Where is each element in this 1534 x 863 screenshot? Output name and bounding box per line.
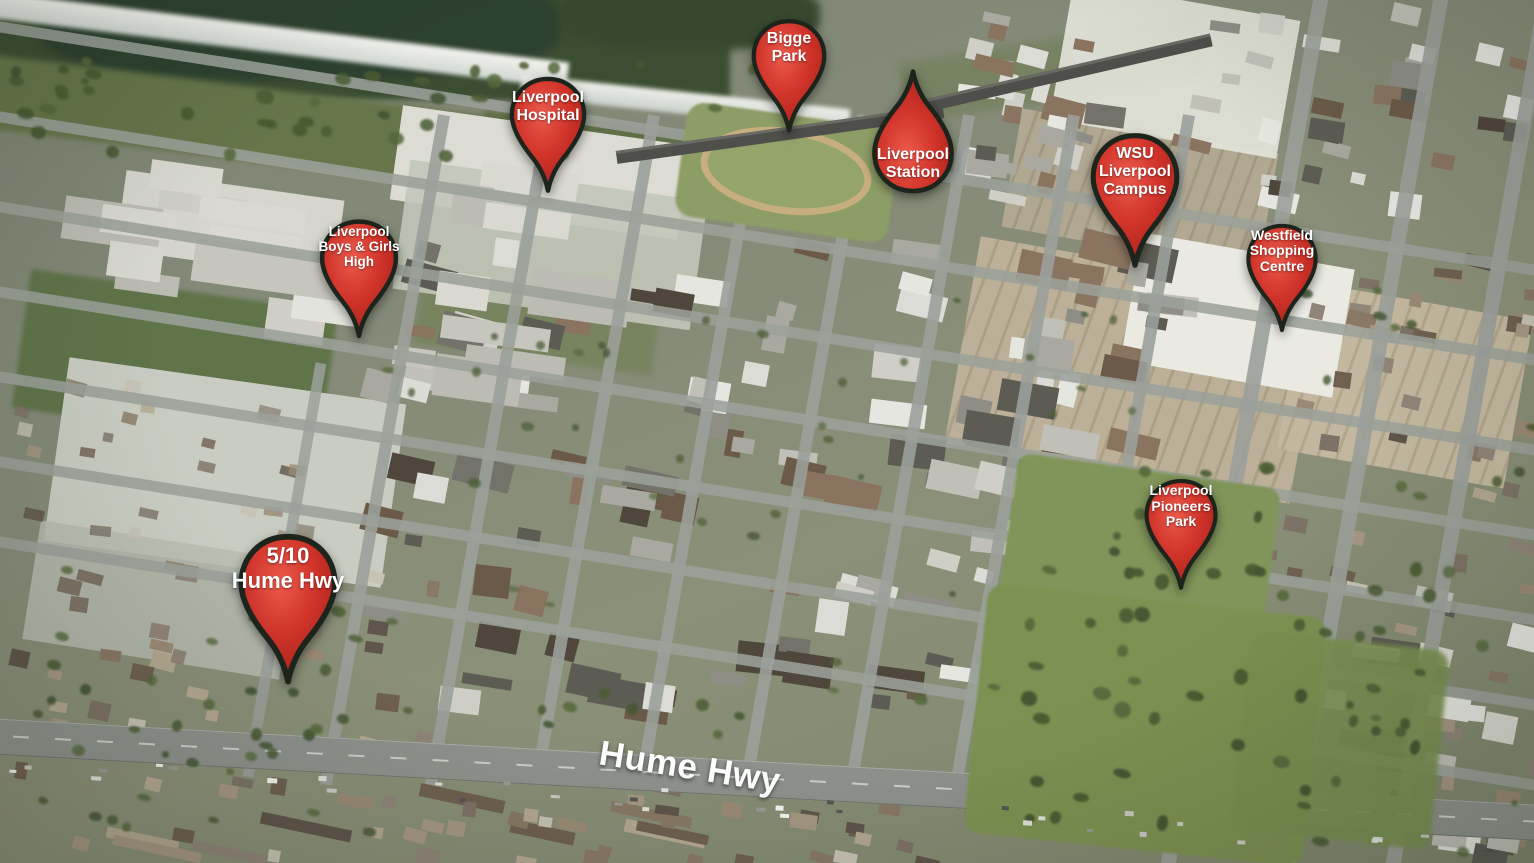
- map-pin-icon: [314, 208, 404, 354]
- map-pin-icon: [746, 8, 832, 148]
- map-pin-icon: [504, 66, 592, 208]
- aerial-map-canvas[interactable]: Hume Hwy Bigge Park Liverpool Hospital L…: [0, 0, 1534, 863]
- pin-liverpool-station[interactable]: Liverpool Station: [866, 58, 960, 200]
- map-pin-icon: [1241, 213, 1323, 347]
- map-pin-icon: [1139, 468, 1223, 605]
- pin-wsu-liverpool-campus[interactable]: WSU Liverpool Campus: [1084, 131, 1186, 275]
- map-pin-icon: [866, 58, 960, 200]
- pin-5-10-hume-hwy[interactable]: 5/10 Hume Hwy: [231, 520, 345, 704]
- pin-bigge-park[interactable]: Bigge Park: [746, 8, 832, 148]
- pin-liverpool-pioneers-park[interactable]: Liverpool Pioneers Park: [1139, 468, 1223, 605]
- map-pin-icon: [231, 520, 345, 704]
- pin-liverpool-boys-girls-high[interactable]: Liverpool Boys & Girls High: [314, 208, 404, 354]
- pins-layer: Bigge Park Liverpool Hospital Liverpool …: [0, 0, 1534, 863]
- pin-westfield-shopping-centre[interactable]: Westfield Shopping Centre: [1241, 213, 1323, 347]
- pin-liverpool-hospital[interactable]: Liverpool Hospital: [504, 66, 592, 208]
- map-pin-icon: [1084, 131, 1186, 275]
